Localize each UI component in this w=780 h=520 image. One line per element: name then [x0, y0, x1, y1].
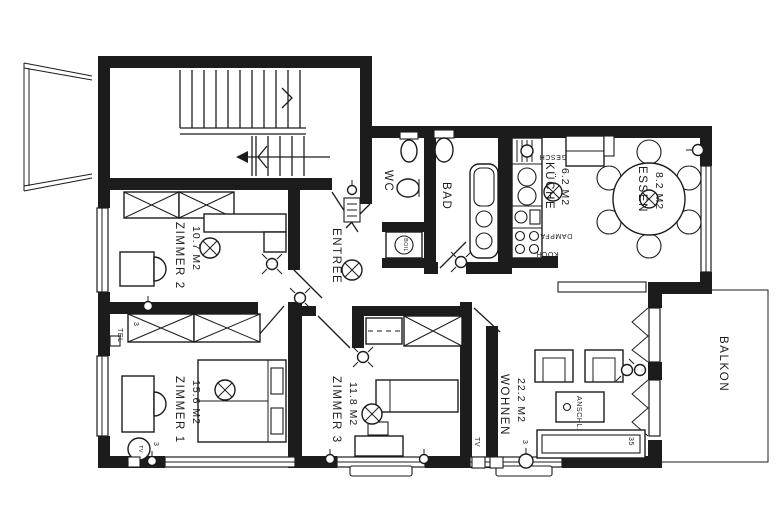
- connection-label: ANSCHL.: [575, 396, 582, 431]
- room-label-wohnen: WOHNEN: [498, 374, 510, 436]
- ceiling-lamp-zimmer1: [215, 380, 235, 400]
- floor-lamp-wohnen: [519, 448, 533, 468]
- entry-canopy: [24, 63, 92, 191]
- room-label-wc: WC: [382, 170, 394, 192]
- window-balkon-2: [649, 380, 660, 436]
- switch-label-zimmer1: 3: [152, 442, 159, 447]
- stair-arrow-head: [236, 151, 248, 163]
- window-balkon-1: [649, 308, 660, 362]
- sink-bowl-1: [518, 168, 536, 186]
- desk-zimmer2: [120, 252, 154, 286]
- wall-lamp-zimmer3-door: [353, 347, 373, 367]
- counter-fitting: [515, 211, 527, 223]
- door-zimmer1: [258, 306, 284, 336]
- toilet-tank-bad: [434, 130, 454, 138]
- socket-box-zimmer1: [128, 457, 140, 467]
- floor-plan-drawing: ZIMMER 2 10.7 M2 ZIMMER 1 15.6 M2 ZIMMER…: [0, 0, 780, 520]
- sink-wc: [397, 179, 419, 197]
- pillow-zimmer1-2: [271, 408, 283, 434]
- tel-label-zimmer2: TEL: [116, 328, 123, 343]
- bathtub-inner: [474, 168, 494, 206]
- curtain-zigzag-2: [632, 380, 648, 436]
- room-label-bad: BAD: [440, 182, 452, 210]
- ceiling-lamp-zimmer3: [362, 404, 382, 424]
- tel-socket-box: [490, 457, 503, 468]
- ceiling-lamp-zimmer2: [200, 238, 220, 258]
- bed-zimmer3: [376, 380, 458, 412]
- wall-lamp-hall-2: [262, 254, 282, 274]
- dresser-zimmer1: [122, 376, 154, 432]
- floor-plan-sheet: ZIMMER 2 10.7 M2 ZIMMER 1 15.6 M2 ZIMMER…: [0, 0, 780, 520]
- sink-bowl-2: [518, 187, 536, 205]
- boiler-label: BOIL: [402, 238, 408, 252]
- switch-label-zimmer2: 3: [132, 322, 139, 327]
- outlet-entry: [348, 180, 357, 195]
- toilet-wc: [401, 140, 417, 162]
- toilet-tank-wc: [400, 132, 418, 139]
- tel-label-wohnen: TEL: [491, 435, 498, 450]
- room-label-essen: ESSEN: [636, 166, 648, 213]
- room-label-entree: ENTREE: [330, 228, 342, 284]
- steam-hood-label: DAMPFA: [540, 232, 572, 239]
- side-table-zimmer2: [264, 232, 286, 252]
- sideboard-essen: [558, 282, 646, 292]
- balcony-slab-outline: [662, 290, 768, 462]
- stove-label: KOCH.: [533, 250, 558, 257]
- area-label-zimmer2: 10.7 M2: [190, 226, 202, 271]
- connection-point: [564, 404, 571, 411]
- burner-1: [516, 232, 525, 241]
- washbasin-bad-1: [476, 211, 492, 227]
- furniture-zimmer2: [120, 192, 286, 286]
- area-label-zimmer3: 11.8 M2: [347, 382, 359, 426]
- area-label-wohnen: 22.2 M2: [515, 378, 527, 423]
- tv-socket-box: [472, 457, 485, 468]
- pillow-zimmer1-1: [271, 368, 283, 394]
- chair-essen-1: [637, 140, 661, 164]
- chair-essen-2: [637, 234, 661, 258]
- counter-fitting-2: [530, 210, 540, 224]
- room-label-balkon: BALKON: [717, 336, 729, 392]
- tv-label-wohnen: TV: [473, 437, 480, 447]
- radiator-zimmer3: [350, 466, 412, 476]
- mark-35-label: 35: [627, 437, 634, 446]
- dishwasher-symbol: [521, 145, 533, 157]
- armchair-1: [535, 350, 573, 382]
- room-label-zimmer1: ZIMMER 1: [173, 376, 185, 444]
- area-label-zimmer1: 15.6 M2: [190, 380, 202, 425]
- outlet-zimmer3-floor-1: [326, 449, 335, 464]
- burner-3: [516, 245, 525, 254]
- wall-lamp-essen-corner: [686, 145, 704, 156]
- switch-label-wohnen: 3: [521, 440, 528, 445]
- toilet-bad: [435, 138, 453, 162]
- sofa-inner: [542, 435, 640, 453]
- outlet-zimmer3-floor-2: [420, 449, 429, 464]
- burner-2: [530, 232, 539, 241]
- intercom-panel: [344, 198, 360, 222]
- furniture-zimmer3: [355, 316, 462, 456]
- outlet-zimmer1-wardrobe: [144, 296, 153, 311]
- curtain-zigzag-1: [632, 308, 648, 362]
- desk-zimmer3: [355, 436, 403, 456]
- bed-zimmer2: [204, 214, 286, 232]
- stair-chevron-up: [282, 88, 292, 108]
- room-label-kueche: KÜCHE: [543, 162, 555, 210]
- area-label-kueche: 6.2 M2: [559, 168, 571, 206]
- tv-label-zimmer1: TV: [137, 445, 143, 453]
- chair-zimmer2: [154, 257, 166, 281]
- stairwell: [180, 70, 330, 176]
- area-label-ess: 8.2 M2: [653, 172, 665, 210]
- door-zimmer3: [318, 316, 350, 348]
- ceiling-lamp-entree: [342, 260, 362, 280]
- armchair-2: [585, 350, 623, 382]
- washbasin-bad-2: [476, 233, 492, 249]
- dishwasher-label: GESCH: [539, 153, 567, 160]
- room-label-zimmer3: ZIMMER 3: [330, 376, 342, 444]
- chair-zimmer1: [154, 392, 166, 416]
- furniture-zimmer1: [122, 314, 286, 467]
- room-label-zimmer2: ZIMMER 2: [173, 222, 185, 290]
- kitchen-end-cabinet: [604, 136, 614, 156]
